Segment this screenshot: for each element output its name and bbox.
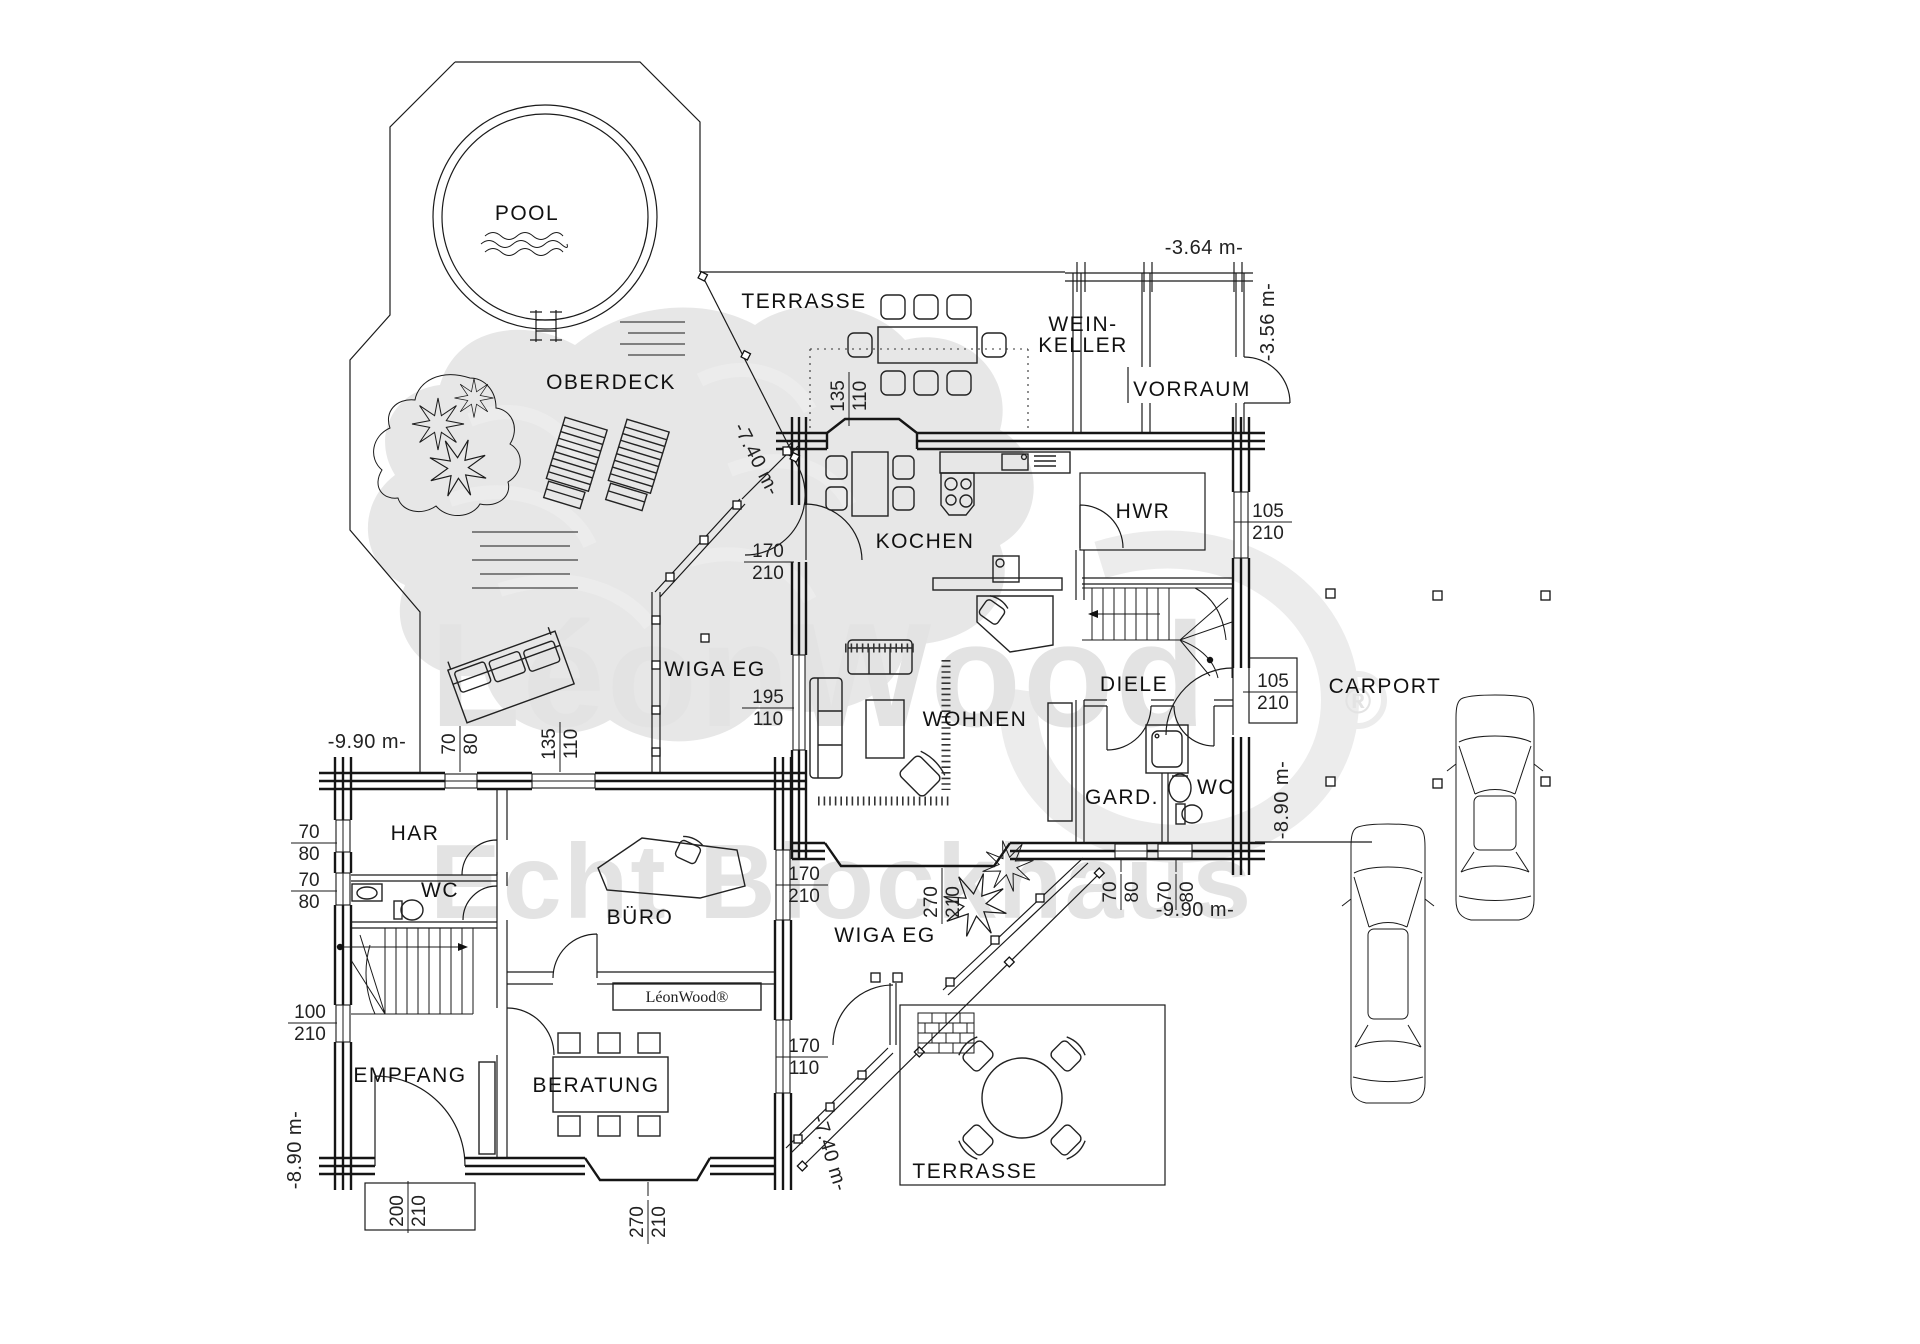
carport <box>1326 589 1550 1103</box>
room-label-diele: DIELE <box>1100 673 1168 696</box>
svg-text:270: 270 <box>921 886 942 918</box>
svg-text:170: 170 <box>788 1036 820 1057</box>
opening-dim: 105210 <box>1243 671 1297 714</box>
room-label-har: HAR <box>391 822 440 845</box>
opening-dim: 270210 <box>627 1200 670 1244</box>
dim-top-width: -3.64 m- <box>1165 237 1243 259</box>
svg-text:80: 80 <box>461 733 482 754</box>
svg-text:100: 100 <box>294 1002 326 1023</box>
round-table-set <box>957 1035 1087 1161</box>
svg-text:210: 210 <box>294 1024 326 1045</box>
svg-text:110: 110 <box>789 1058 819 1079</box>
svg-text:210: 210 <box>943 886 964 918</box>
svg-text:210: 210 <box>1252 523 1284 544</box>
room-label-gard: GARD. <box>1085 786 1159 809</box>
svg-text:70: 70 <box>1155 881 1176 902</box>
svg-text:70: 70 <box>298 870 319 891</box>
room-label-vorraum: VORRAUM <box>1133 378 1251 401</box>
svg-text:110: 110 <box>753 709 783 730</box>
room-label-oberdeck: OBERDECK <box>546 371 676 394</box>
svg-text:210: 210 <box>1257 693 1289 714</box>
svg-text:80: 80 <box>1122 881 1143 902</box>
pool-wave-icon <box>481 233 567 256</box>
opening-dim: 7080 <box>291 822 337 865</box>
wc-left-fixtures <box>352 884 423 920</box>
room-label-beratung: BERATUNG <box>532 1074 659 1097</box>
room-label-carport: CARPORT <box>1329 675 1442 698</box>
floor-plan-page: LéonWood ® Echt Blockhaus <box>0 0 1920 1344</box>
brand-sideboard: LéonWood® <box>613 983 761 1010</box>
room-label-weinkeller-2: KELLER <box>1038 334 1128 357</box>
svg-text:80: 80 <box>1177 881 1198 902</box>
svg-text:195: 195 <box>752 687 784 708</box>
svg-text:135: 135 <box>539 728 560 760</box>
room-label-wc-left: WC <box>421 879 459 902</box>
opening-dim: 270210 <box>921 880 964 924</box>
svg-text:105: 105 <box>1257 671 1289 692</box>
car-wagon <box>1342 824 1434 1103</box>
svg-text:110: 110 <box>561 729 582 759</box>
dim-right-height: -8.90 m- <box>1271 761 1293 839</box>
room-label-wc-main: WC <box>1197 776 1235 799</box>
svg-text:270: 270 <box>627 1206 648 1238</box>
room-label-pool: POOL <box>495 202 559 225</box>
opening-dim: 7080 <box>291 870 337 913</box>
svg-text:80: 80 <box>298 844 319 865</box>
svg-text:105: 105 <box>1252 501 1284 522</box>
room-label-buero: BÜRO <box>607 906 674 929</box>
svg-text:70: 70 <box>298 822 319 843</box>
svg-text:110: 110 <box>850 381 871 411</box>
svg-text:210: 210 <box>752 563 784 584</box>
svg-text:200: 200 <box>387 1195 408 1227</box>
svg-text:170: 170 <box>752 541 784 562</box>
grill-icon <box>918 1013 974 1053</box>
svg-text:170: 170 <box>788 864 820 885</box>
svg-text:70: 70 <box>439 733 460 754</box>
room-label-kochen: KOCHEN <box>876 530 975 553</box>
car-sedan <box>1447 695 1543 920</box>
svg-text:210: 210 <box>649 1206 670 1238</box>
room-label-empfang: EMPFANG <box>353 1064 466 1087</box>
room-label-weinkeller-1: WEIN- <box>1048 313 1117 336</box>
floor-plan-canvas: LéonWood ® Echt Blockhaus <box>0 0 1920 1344</box>
svg-text:70: 70 <box>1100 881 1121 902</box>
room-label-terrasse-top: TERRASSE <box>741 290 866 313</box>
lower-terrace <box>900 1005 1165 1185</box>
room-label-hwr: HWR <box>1116 500 1171 523</box>
sideboard <box>479 1062 495 1154</box>
svg-text:210: 210 <box>409 1195 430 1227</box>
svg-text:135: 135 <box>828 380 849 412</box>
svg-text:210: 210 <box>788 886 820 907</box>
opening-dim: 100210 <box>288 1002 337 1045</box>
room-label-terrasse-bottom: TERRASSE <box>912 1160 1037 1183</box>
opening-dim: 200210 <box>387 1189 430 1233</box>
room-label-wiga-upper: WIGA EG <box>664 658 766 681</box>
dim-top-height: -3.56 m- <box>1257 283 1279 361</box>
plan-brand-label: LéonWood® <box>646 989 729 1006</box>
dim-left-width: -9.90 m- <box>328 731 406 753</box>
room-label-wohnen: WOHNEN <box>923 708 1028 731</box>
svg-text:80: 80 <box>298 892 319 913</box>
dim-left-height: -8.90 m- <box>284 1111 306 1189</box>
room-label-wiga-lower: WIGA EG <box>834 924 936 947</box>
